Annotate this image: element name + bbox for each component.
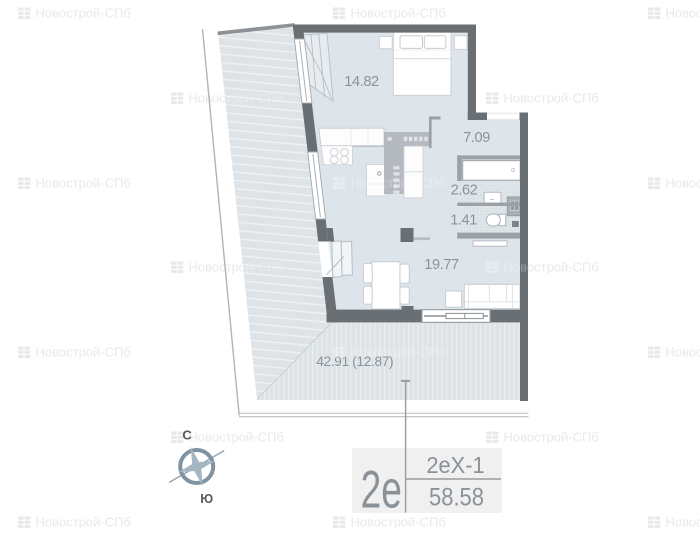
svg-text:Новострой-СПб: Новострой-СПб (36, 6, 131, 21)
svg-text:Новострой-СПб: Новострой-СПб (666, 515, 700, 530)
svg-text:Новострой-СПб: Новострой-СПб (36, 176, 131, 191)
svg-text:1.41: 1.41 (450, 213, 477, 229)
svg-text:Новострой-СПб: Новострой-СПб (666, 176, 700, 191)
svg-text:Новострой-СПб: Новострой-СПб (351, 176, 446, 191)
svg-text:Новострой-СПб: Новострой-СПб (504, 91, 599, 106)
svg-text:Новострой-СПб: Новострой-СПб (36, 345, 131, 360)
svg-text:14.82: 14.82 (344, 74, 379, 90)
svg-text:Новострой-СПб: Новострой-СПб (36, 515, 131, 530)
svg-text:Новострой-СПб: Новострой-СПб (189, 430, 284, 445)
svg-text:Новострой-СПб: Новострой-СПб (351, 6, 446, 21)
svg-text:58.58: 58.58 (429, 483, 484, 511)
svg-text:2еХ-1: 2еХ-1 (426, 452, 484, 478)
svg-text:Новострой-СПб: Новострой-СПб (504, 430, 599, 445)
svg-text:Ю: Ю (200, 492, 213, 506)
svg-text:С: С (182, 427, 192, 442)
svg-text:2е: 2е (361, 460, 402, 519)
svg-text:7.09: 7.09 (463, 130, 490, 146)
svg-text:Новострой-СПб: Новострой-СПб (666, 345, 700, 360)
svg-text:19.77: 19.77 (424, 257, 459, 273)
svg-text:2.62: 2.62 (451, 183, 478, 199)
svg-text:Новострой-СПб: Новострой-СПб (666, 6, 700, 21)
svg-text:Новострой-СПб: Новострой-СПб (351, 345, 446, 360)
